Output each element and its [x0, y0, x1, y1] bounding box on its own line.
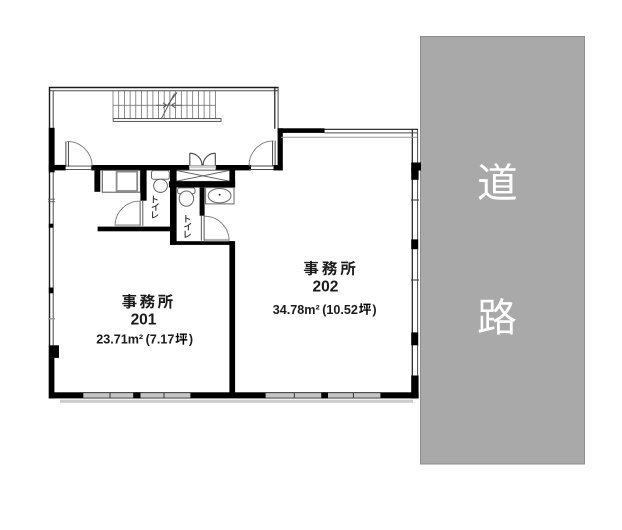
svg-text:202: 202 [312, 278, 338, 295]
svg-text:): ) [372, 303, 376, 317]
svg-text:201: 201 [131, 311, 157, 328]
svg-text:23.71m² (7.17: 23.71m² (7.17 [96, 333, 174, 347]
svg-text:34.78m² (10.52: 34.78m² (10.52 [273, 303, 358, 317]
svg-text:): ) [189, 333, 193, 347]
